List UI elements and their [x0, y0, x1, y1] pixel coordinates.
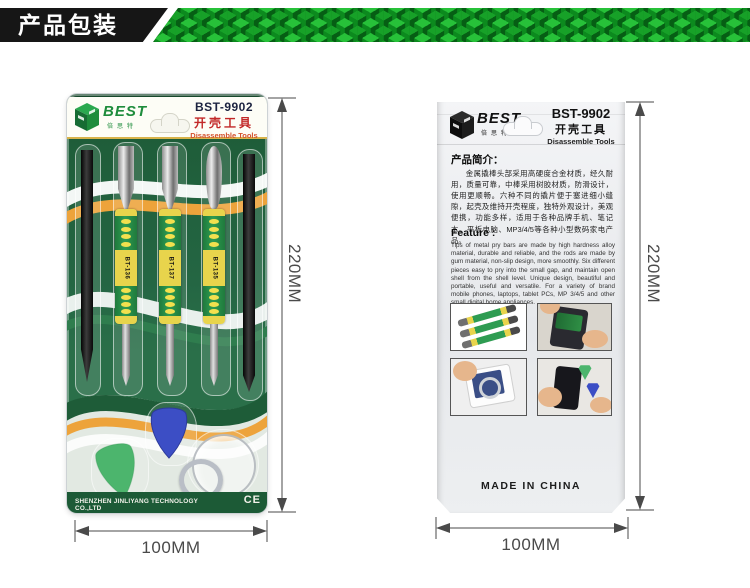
best-logo-icon — [449, 110, 475, 140]
photo-spudgers — [450, 303, 527, 351]
intro-heading: 产品简介： — [451, 152, 504, 167]
green-cube-pattern-banner — [150, 8, 750, 42]
brand-wordmark: BEST — [103, 103, 147, 120]
blue-pry-pick — [147, 404, 191, 460]
spudger-blade — [166, 324, 174, 386]
metal-spudger-tool: BT-136 — [115, 94, 137, 394]
back-height-label: 220MM — [643, 244, 663, 303]
package-back-card: BEST 倍思特 BST-9902 开壳工具 Disassemble Tools… — [437, 100, 625, 513]
photo-suction-cup — [450, 358, 527, 416]
brand-chinese: 倍思特 — [107, 121, 137, 130]
front-height-label: 220MM — [284, 244, 304, 303]
product-packaging-page: 产品包装 BT-136 — [0, 0, 750, 588]
package-front-card: BT-136 BT-137 BT-135 — [67, 94, 267, 513]
product-title-en: Disassemble Tools — [545, 137, 617, 146]
back-width-label: 100MM — [425, 535, 637, 555]
model-number: BST-9902 — [189, 100, 259, 114]
tool-code-label: BT-135 — [211, 257, 217, 280]
hang-hole — [503, 122, 543, 136]
front-card-header: BEST 倍思特 BST-9902 开壳工具 Disassemble Tools — [67, 97, 267, 139]
front-card-footer: SHENZHEN JINLIYANG TECHNOLOGY CO.,LTD CE — [67, 492, 267, 513]
ce-mark: CE — [244, 494, 261, 506]
spudger-handle: BT-136 — [115, 209, 137, 324]
spudger-blade — [118, 146, 134, 209]
black-pry-bar — [243, 154, 255, 392]
front-width-label: 100MM — [65, 538, 277, 558]
spudger-blade — [210, 324, 218, 386]
photo-pry-picks — [537, 358, 612, 416]
black-pry-bar — [81, 150, 93, 382]
spudger-blade — [162, 146, 178, 209]
back-height-dimension-arrow — [624, 96, 658, 516]
company-name: SHENZHEN JINLIYANG TECHNOLOGY CO.,LTD — [75, 498, 225, 512]
best-logo-icon — [74, 102, 100, 132]
tool-code-label: BT-136 — [123, 257, 129, 280]
spudger-blade — [122, 324, 130, 386]
feature-paragraph: Tips of metal pry bars are made by high … — [451, 242, 615, 307]
metal-spudger-tool: BT-137 — [159, 94, 181, 394]
front-height-dimension-arrow — [266, 92, 300, 518]
model-number: BST-9902 — [545, 106, 617, 121]
photo-phone-open — [537, 303, 612, 351]
spudger-blade — [206, 146, 222, 209]
section-title: 产品包装 — [0, 8, 168, 42]
spudger-handle: BT-135 — [203, 209, 225, 324]
product-title-cn: 开壳工具 — [189, 114, 259, 131]
hang-hole — [150, 119, 190, 133]
feature-heading: Feature : — [451, 227, 495, 239]
made-in-label: MADE IN CHINA — [437, 480, 625, 492]
tool-code-label: BT-137 — [167, 257, 173, 280]
product-title-cn: 开壳工具 — [545, 121, 617, 137]
product-title-en: Disassemble Tools — [189, 131, 259, 140]
spudger-handle: BT-137 — [159, 209, 181, 324]
